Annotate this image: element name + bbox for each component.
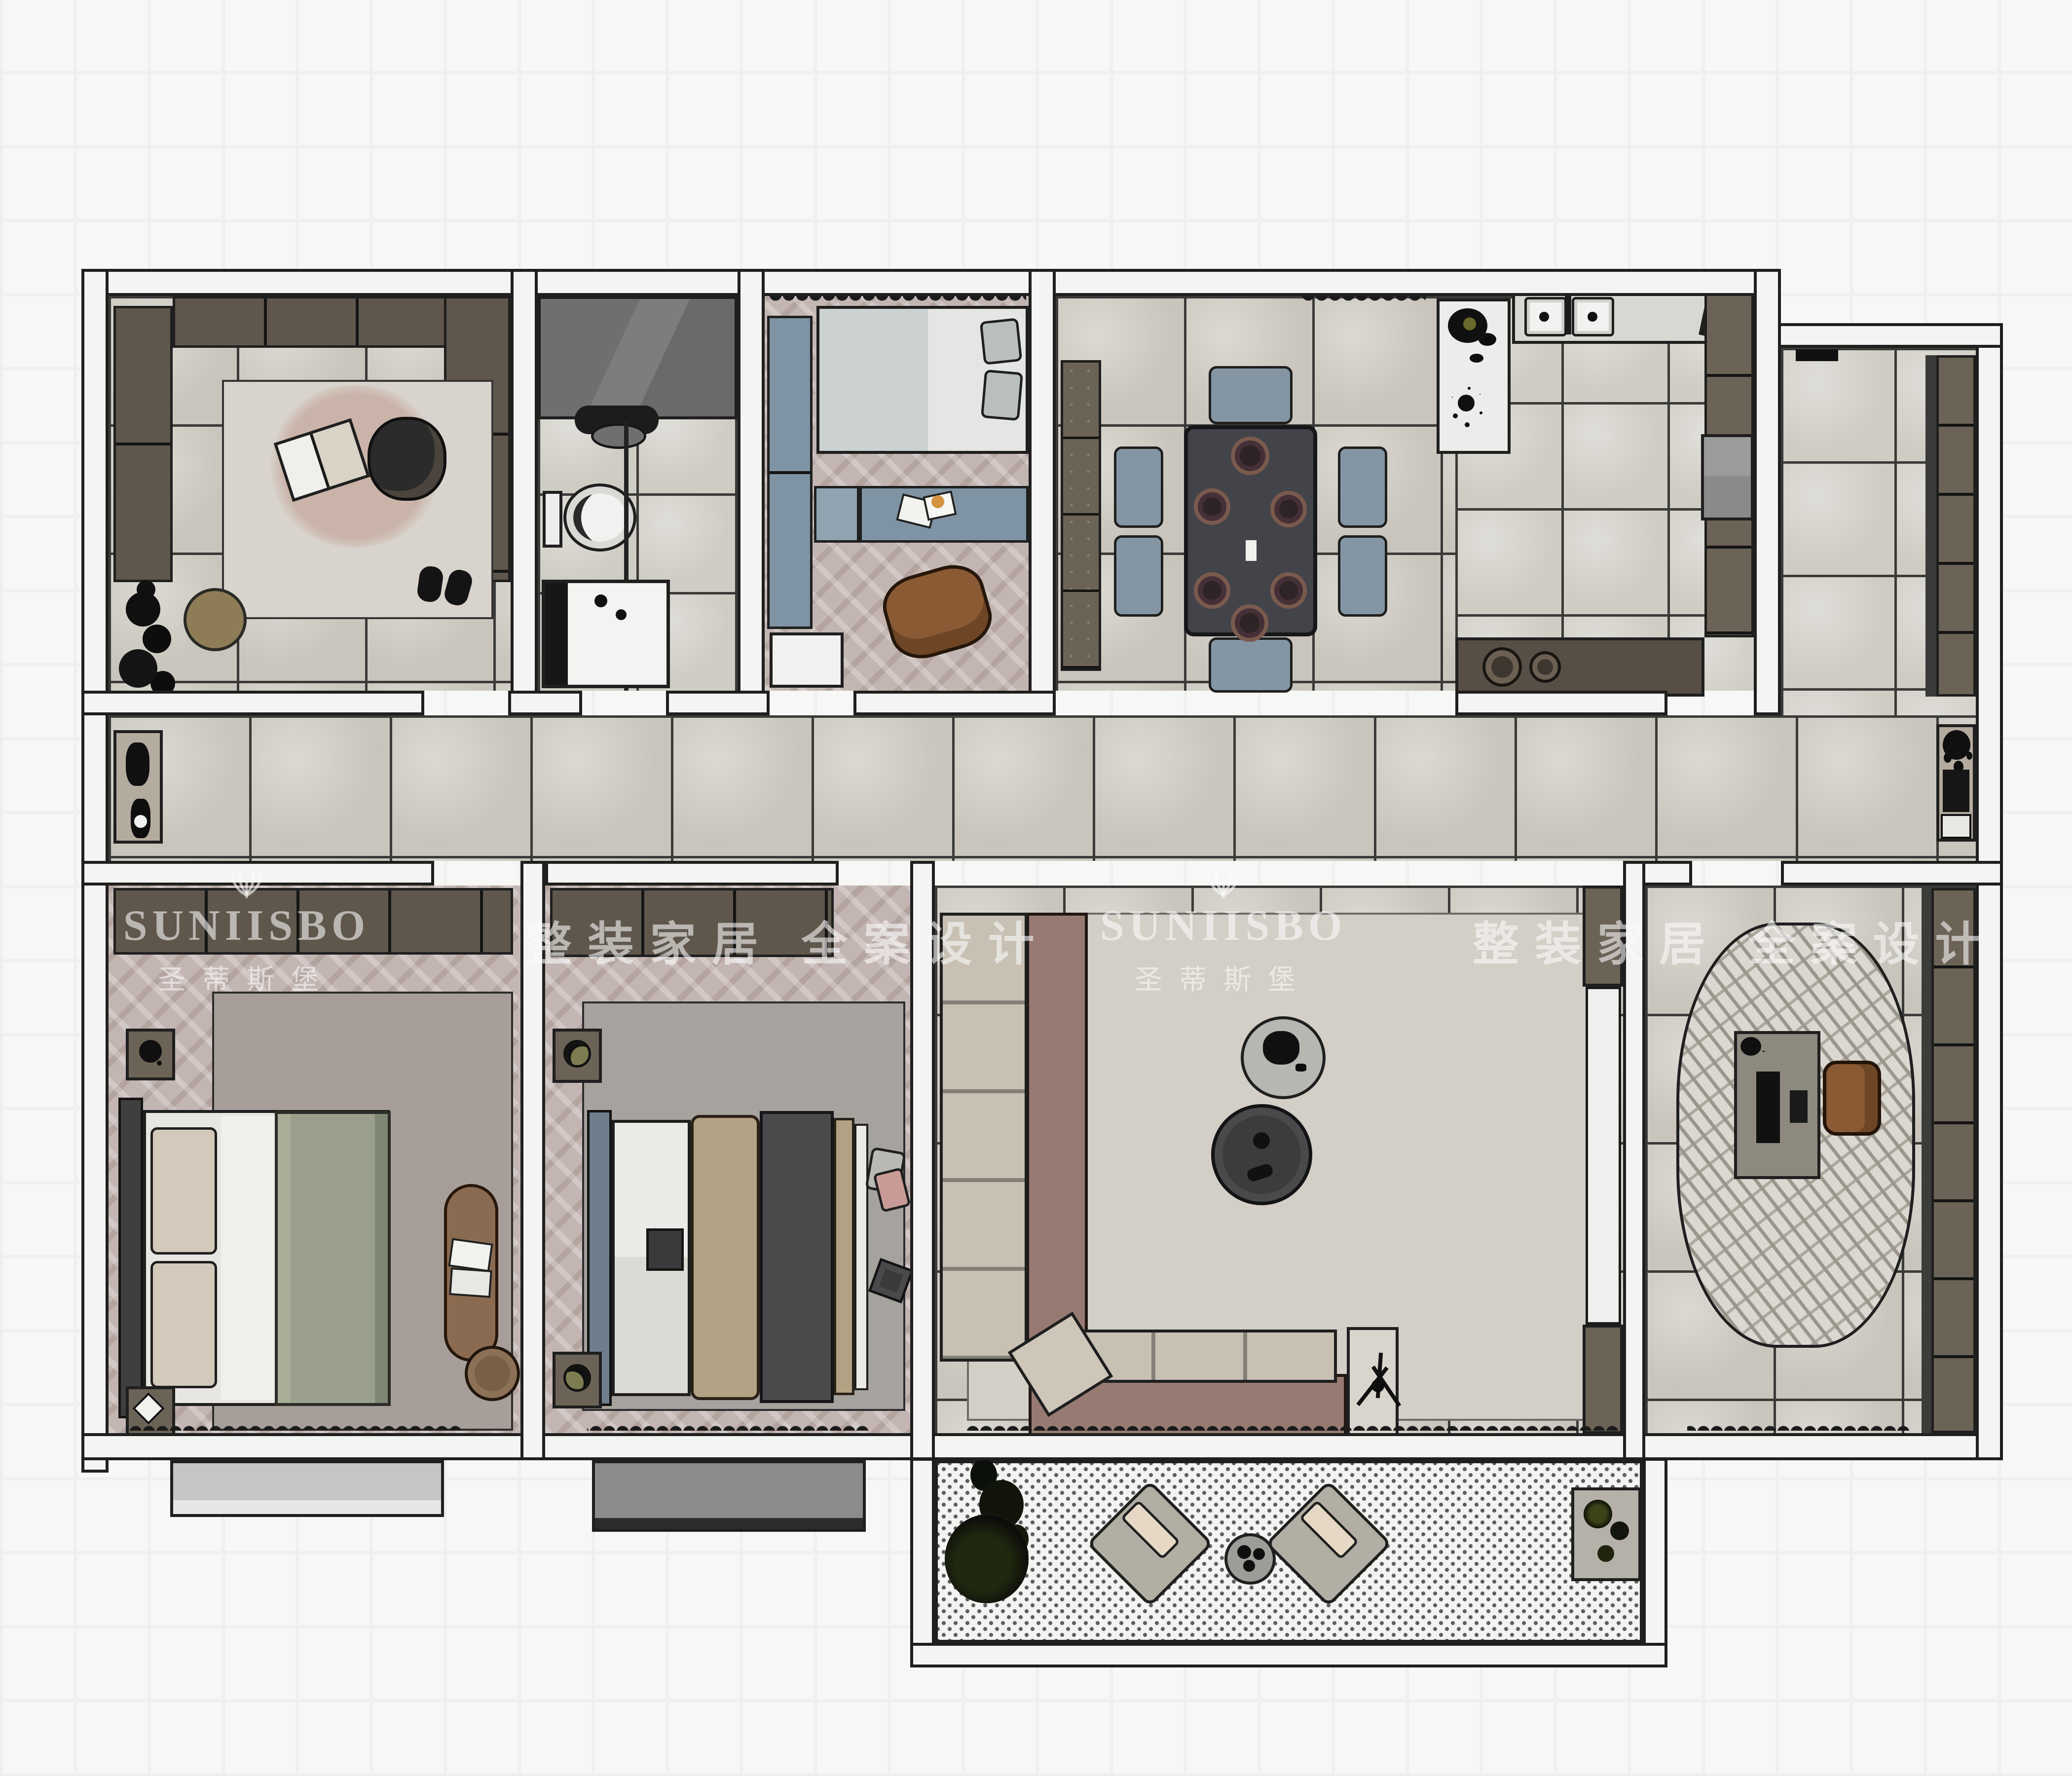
hall-plant-right xyxy=(1943,730,1970,760)
bedroom2-wardrobe xyxy=(550,888,834,957)
bedroom2-tan-blanket xyxy=(691,1115,760,1400)
coffee-table-plant xyxy=(1263,1031,1299,1065)
master-pillow-2 xyxy=(150,1261,217,1388)
sink-drain-left xyxy=(1539,312,1549,322)
bookshelf-inner-edge xyxy=(1922,888,1932,1433)
round-ottoman xyxy=(184,588,247,651)
plate-1 xyxy=(1231,437,1269,475)
study-bookshelf xyxy=(1931,888,1976,1433)
plate-3 xyxy=(1270,491,1307,527)
shower-drain xyxy=(594,594,607,607)
wall-living-study xyxy=(1623,861,1645,1460)
bedroom2-dark-blanket xyxy=(760,1111,834,1403)
side-table-cup-1 xyxy=(1237,1545,1251,1559)
sofa-body-vertical xyxy=(1026,913,1088,1362)
wall-hall-top-e xyxy=(1455,691,1667,715)
wall-hall-bottom-a xyxy=(81,861,434,886)
media-wall-cabinet-top xyxy=(1583,886,1623,987)
plate-2 xyxy=(1194,488,1230,525)
master-pouf xyxy=(465,1346,520,1401)
master-sheet xyxy=(221,1116,276,1400)
tv-screen-wall xyxy=(1586,987,1621,1325)
mat-plant-star xyxy=(1458,395,1475,411)
bay-ledge-left xyxy=(170,1460,444,1517)
kids-desk-left xyxy=(814,486,859,543)
plate-6 xyxy=(1231,604,1268,642)
coffee-table-dark xyxy=(1211,1104,1312,1205)
wall-hall-top-c xyxy=(666,691,770,715)
pillow-clothes xyxy=(646,1228,684,1271)
desk-plant xyxy=(1740,1037,1761,1056)
dining-sideboard xyxy=(1061,360,1101,671)
utility-door-mark xyxy=(1796,349,1838,361)
wall-hall-top-d xyxy=(853,691,1056,715)
master-wardrobe xyxy=(113,888,513,955)
wall-bath-kids xyxy=(738,269,765,715)
master-olive-blanket xyxy=(275,1111,391,1406)
lounge-armchair xyxy=(368,417,446,501)
living-window-curtain xyxy=(967,1415,1618,1431)
sink-drain-right xyxy=(1588,312,1597,322)
toilet-tank xyxy=(543,491,562,548)
side-table-cup-3 xyxy=(1243,1560,1255,1572)
burner-small xyxy=(1529,651,1561,683)
wall-hall-top-b xyxy=(508,691,582,715)
wall-hall-top-a xyxy=(81,691,424,715)
utility-shelf-column xyxy=(1936,355,1976,697)
cloakroom-top-cabinets xyxy=(173,296,446,348)
wall-bottom xyxy=(81,1433,2003,1460)
hall-console-right-mat xyxy=(1941,814,1971,839)
table-item-1 xyxy=(1253,1132,1270,1149)
hall-console-right-box xyxy=(1943,770,1969,812)
mat-plant-top xyxy=(1448,308,1487,343)
nightstand-decor-top xyxy=(563,1040,591,1068)
wall-kids-dining xyxy=(1029,269,1056,715)
desk-monitor-item xyxy=(1790,1090,1808,1123)
bedroom2-window-curtain xyxy=(587,1415,868,1431)
balcony-large-plant xyxy=(945,1515,1029,1603)
cloakroom-left-wardrobe xyxy=(113,306,173,582)
study-chair xyxy=(1823,1061,1881,1136)
dining-chair-top xyxy=(1209,366,1293,424)
wall-balcony-bottom xyxy=(910,1643,1667,1667)
hall-console-left-dish xyxy=(132,813,149,830)
sofa-cushions-vertical xyxy=(940,913,1028,1362)
burner-large xyxy=(1482,647,1522,687)
floor-plan: SUNIISBO 圣蒂斯堡 整装家居 全案设计 SUNIISBO 圣蒂斯堡 整装… xyxy=(0,0,2072,1776)
wall-kitchen-right xyxy=(1754,269,1781,715)
nightstand-plant xyxy=(139,1040,162,1063)
balcony-plant-mat xyxy=(1571,1487,1641,1581)
wall-top xyxy=(81,269,1781,296)
wall-utility-top xyxy=(1754,323,2003,348)
dining-chair-right-1 xyxy=(1338,446,1387,528)
wall-right xyxy=(1976,323,2003,1460)
balcony-mat-plant xyxy=(1584,1500,1612,1528)
kids-door-mat xyxy=(770,632,844,688)
wall-master-bed2 xyxy=(520,861,545,1460)
dining-chair-left-2 xyxy=(1114,535,1163,617)
kids-wardrobe xyxy=(767,316,813,629)
shower-tray xyxy=(542,580,670,688)
master-window-curtain xyxy=(126,1415,461,1431)
desk-orange-item xyxy=(931,495,944,508)
sink-faucet xyxy=(1565,292,1571,334)
dining-chair-bottom xyxy=(1209,637,1293,693)
kids-pillow-1 xyxy=(980,318,1023,365)
master-pillow-1 xyxy=(150,1127,217,1255)
dining-chair-left-1 xyxy=(1114,446,1163,528)
bench-magazine-2 xyxy=(449,1267,492,1298)
balcony-side-table xyxy=(1224,1533,1276,1585)
nightstand-decor-bottom xyxy=(563,1364,591,1392)
wall-balcony-right xyxy=(1643,1458,1667,1667)
shower-drain-2 xyxy=(616,609,627,620)
kids-pillow-2 xyxy=(981,370,1023,421)
plate-5 xyxy=(1270,572,1307,609)
wall-balcony-left xyxy=(910,1458,935,1667)
hall-plant-left xyxy=(126,742,149,786)
master-headboard xyxy=(118,1098,143,1418)
fridge xyxy=(1701,434,1754,520)
wall-cloak-bath xyxy=(511,269,538,715)
wall-hall-bottom-d xyxy=(1781,861,2003,886)
utility-shelf-edge xyxy=(1925,355,1936,697)
wall-hall-bottom-b xyxy=(545,861,839,886)
study-window-curtain xyxy=(1687,1415,1909,1431)
bath-basin xyxy=(591,423,646,449)
bath-stone-vanity xyxy=(538,296,738,419)
bedroom2-tan-fold xyxy=(834,1118,854,1395)
desk-laptop xyxy=(1756,1072,1780,1143)
bay-ledge-center xyxy=(592,1460,866,1532)
cloakroom-plant xyxy=(126,592,160,627)
dining-chair-right-2 xyxy=(1338,535,1387,617)
plate-4 xyxy=(1194,572,1230,609)
bench-magazine-1 xyxy=(448,1238,493,1272)
dining-window-greens xyxy=(1302,296,1426,312)
bedroom2-sheet-edge xyxy=(854,1124,868,1390)
hallway-floor xyxy=(109,715,1976,861)
table-runner-item xyxy=(1246,540,1257,561)
wall-bed2-living xyxy=(910,861,935,1460)
side-table-cup-2 xyxy=(1253,1548,1265,1560)
floor-lamp-head xyxy=(1371,1379,1384,1392)
